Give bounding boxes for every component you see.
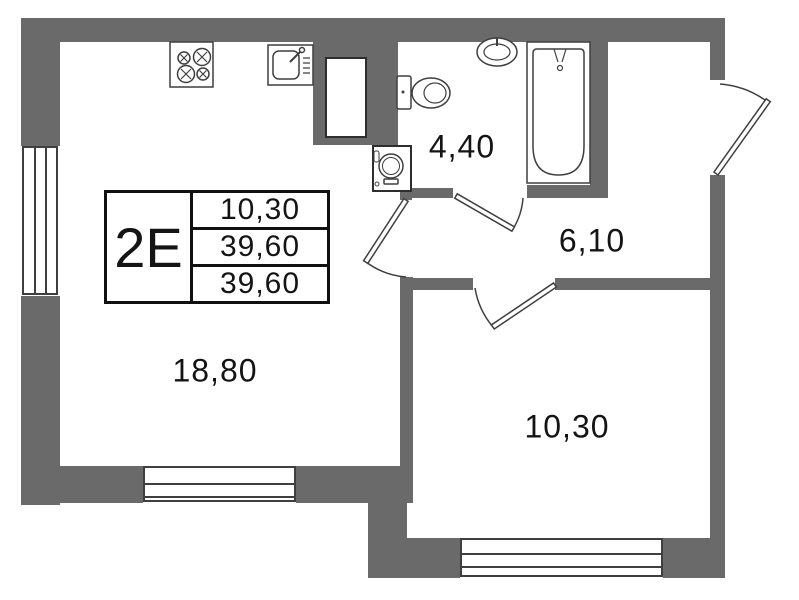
wash-basin-icon bbox=[477, 38, 517, 66]
area-label-bedroom: 10,30 bbox=[524, 409, 609, 446]
window-left bbox=[22, 146, 58, 295]
unit-stat-row: 10,30 bbox=[193, 193, 327, 227]
wall-living-bottom-right bbox=[296, 466, 413, 503]
wall-living-bottom-left bbox=[60, 466, 143, 503]
entrance-door bbox=[714, 84, 770, 175]
bedroom-door bbox=[475, 283, 556, 329]
washing-machine-niche bbox=[372, 145, 412, 192]
stove-icon bbox=[170, 42, 213, 87]
wall-top-left-corner bbox=[21, 18, 60, 146]
area-label-bathroom: 4,40 bbox=[429, 129, 495, 166]
unit-stat-row: 39,60 bbox=[193, 264, 327, 301]
unit-info-card: 2Е 10,30 39,60 39,60 bbox=[104, 190, 330, 304]
bathtub-icon bbox=[527, 42, 590, 183]
wall-bath-bottom-left bbox=[412, 188, 453, 198]
wall-bath-right bbox=[590, 38, 608, 188]
unit-label: 2Е bbox=[107, 193, 193, 301]
area-label-living-kitchen: 18,80 bbox=[172, 353, 257, 390]
kitchen-sink-icon bbox=[268, 45, 313, 85]
wall-hall-bedroom-left bbox=[404, 278, 473, 290]
wall-top bbox=[60, 18, 725, 42]
unit-stat-row: 39,60 bbox=[193, 227, 327, 264]
wall-step-block bbox=[368, 503, 407, 578]
living-hall-door bbox=[364, 199, 408, 277]
toilet-icon bbox=[397, 76, 450, 109]
wall-left-lower bbox=[21, 296, 60, 505]
area-label-hallway: 6,10 bbox=[559, 223, 625, 260]
wall-right-lower bbox=[710, 175, 725, 578]
unit-stats: 10,30 39,60 39,60 bbox=[193, 193, 327, 301]
bathroom-door bbox=[455, 194, 523, 231]
window-bedroom-bottom bbox=[460, 538, 663, 577]
window-living-bottom bbox=[143, 466, 296, 502]
floor-plan: 18,80 4,40 6,10 10,30 2Е 10,30 39,60 39,… bbox=[0, 0, 799, 600]
vent-shaft bbox=[325, 57, 367, 138]
wall-partition-living-bedroom bbox=[400, 277, 413, 466]
wall-bedroom-bottom-left bbox=[407, 538, 460, 578]
wall-hall-bedroom-right bbox=[555, 278, 710, 290]
wall-right-upper bbox=[710, 40, 725, 80]
